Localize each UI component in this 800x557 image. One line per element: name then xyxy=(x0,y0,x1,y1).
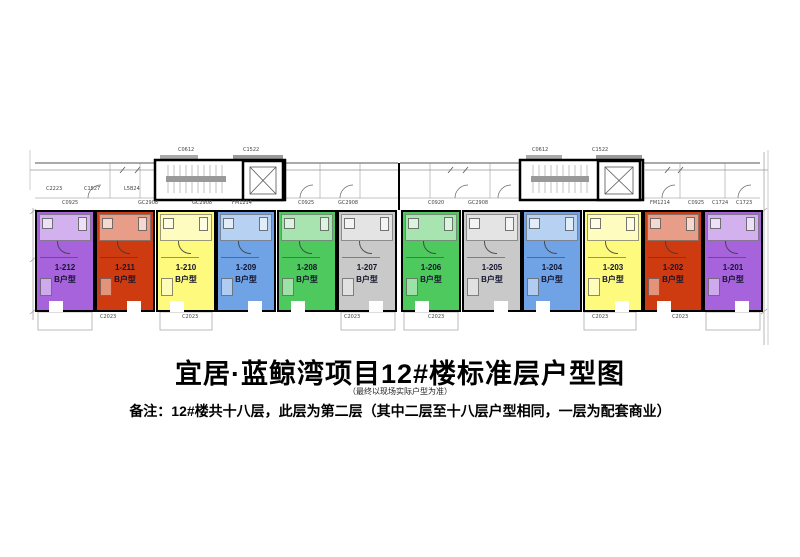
unit-type: B户型 xyxy=(524,274,580,286)
entry-recess xyxy=(735,301,749,312)
unit-type: B户型 xyxy=(37,274,93,286)
door-arc-icon xyxy=(423,241,436,254)
unit-label: 1-206 B户型 xyxy=(403,262,459,286)
unit-number: 1-205 xyxy=(464,262,520,274)
balcony-window-code: C2023 xyxy=(344,315,360,320)
unit-number: 1-210 xyxy=(158,262,214,274)
unit-number: 1-206 xyxy=(403,262,459,274)
room-divider xyxy=(527,257,565,258)
unit-type: B户型 xyxy=(339,274,395,286)
fixture-icon xyxy=(320,217,329,231)
unit-label: 1-209 B户型 xyxy=(218,262,274,286)
balcony-window-code: C2023 xyxy=(182,315,198,320)
fixture-icon xyxy=(565,217,574,231)
fixture-icon xyxy=(408,218,419,229)
unit-type: B户型 xyxy=(464,274,520,286)
fixture-icon xyxy=(746,217,755,231)
balcony-window-code: C2023 xyxy=(592,315,608,320)
balcony-window-code: C2023 xyxy=(428,315,444,320)
stairwell-left xyxy=(155,155,285,200)
window-code: GC2908 xyxy=(468,201,488,206)
unit-1-204: 1-204 B户型 xyxy=(522,210,582,312)
unit-number: 1-202 xyxy=(645,262,701,274)
fixture-icon xyxy=(380,217,389,231)
plan-note: 备注：12#楼共十八层，此层为第二层（其中二层至十八层户型相同，一层为配套商业） xyxy=(0,401,800,421)
entry-recess xyxy=(657,301,671,312)
room-divider xyxy=(467,257,505,258)
unit-number: 1-208 xyxy=(279,262,335,274)
stairwell-right xyxy=(520,155,643,200)
unit-wet-rooms xyxy=(220,214,272,241)
door-arc-icon xyxy=(57,241,70,254)
fixture-icon xyxy=(138,217,147,231)
stair-window-code: C1522 xyxy=(243,148,259,153)
unit-number: 1-212 xyxy=(37,262,93,274)
unit-label: 1-202 B户型 xyxy=(645,262,701,286)
unit-number: 1-201 xyxy=(705,262,761,274)
unit-label: 1-207 B户型 xyxy=(339,262,395,286)
unit-wet-rooms xyxy=(647,214,699,241)
fixture-icon xyxy=(686,217,695,231)
fixture-icon xyxy=(590,218,601,229)
fixture-icon xyxy=(199,217,208,231)
unit-type: B户型 xyxy=(97,274,153,286)
unit-label: 1-204 B户型 xyxy=(524,262,580,286)
page-root: 1-212 B户型 1-211 B户型 xyxy=(0,0,800,557)
room-divider xyxy=(588,257,626,258)
room-divider xyxy=(221,257,259,258)
window-code: C2223 xyxy=(46,187,62,192)
fixture-icon xyxy=(469,218,480,229)
window-code: C0925 xyxy=(62,201,78,206)
window-code: C1527 xyxy=(84,187,100,192)
stair-window-code: C0612 xyxy=(178,148,194,153)
unit-wet-rooms xyxy=(99,214,151,241)
unit-1-211: 1-211 B户型 xyxy=(95,210,155,312)
unit-number: 1-204 xyxy=(524,262,580,274)
room-divider xyxy=(406,257,444,258)
entry-recess xyxy=(494,301,508,312)
fixture-icon xyxy=(344,218,355,229)
fixture-icon xyxy=(505,217,514,231)
unit-wet-rooms xyxy=(405,214,457,241)
stair-window-code: C1522 xyxy=(592,148,608,153)
window-code: C0925 xyxy=(298,201,314,206)
door-arc-icon xyxy=(484,241,497,254)
door-code: FM1214 xyxy=(232,201,252,206)
unit-label: 1-201 B户型 xyxy=(705,262,761,286)
entry-recess xyxy=(127,301,141,312)
entry-recess xyxy=(369,301,383,312)
unit-label: 1-211 B户型 xyxy=(97,262,153,286)
entry-recess xyxy=(170,301,184,312)
balcony-window-code: C2023 xyxy=(100,315,116,320)
door-arc-icon xyxy=(178,241,191,254)
unit-1-207: 1-207 B户型 xyxy=(337,210,397,312)
room-divider xyxy=(100,257,138,258)
door-arc-icon xyxy=(665,241,678,254)
window-code: GC2908 xyxy=(138,201,158,206)
fixture-icon xyxy=(650,218,661,229)
door-code: FM1214 xyxy=(650,201,670,206)
unit-type: B户型 xyxy=(158,274,214,286)
unit-wet-rooms xyxy=(707,214,759,241)
unit-1-202: 1-202 B户型 xyxy=(643,210,703,312)
unit-number: 1-207 xyxy=(339,262,395,274)
entry-recess xyxy=(415,301,429,312)
unit-1-201: 1-201 B户型 xyxy=(703,210,763,312)
fixture-icon xyxy=(284,218,295,229)
elevator-left-icon xyxy=(243,161,283,200)
unit-1-205: 1-205 B户型 xyxy=(462,210,522,312)
unit-1-203: 1-203 B户型 xyxy=(583,210,643,312)
unit-wet-rooms xyxy=(587,214,639,241)
room-divider xyxy=(708,257,746,258)
room-divider xyxy=(161,257,199,258)
unit-wet-rooms xyxy=(39,214,91,241)
fixture-icon xyxy=(444,217,453,231)
window-code: C0920 xyxy=(428,201,444,206)
elevator-right-icon xyxy=(598,161,640,200)
unit-wet-rooms xyxy=(281,214,333,241)
unit-wet-rooms xyxy=(466,214,518,241)
fixture-icon xyxy=(223,218,234,229)
fixture-icon xyxy=(78,217,87,231)
unit-type: B户型 xyxy=(403,274,459,286)
unit-type: B户型 xyxy=(645,274,701,286)
balcony-window-code: C2023 xyxy=(672,315,688,320)
balcony-outlines xyxy=(38,312,760,330)
room-divider xyxy=(282,257,320,258)
unit-label: 1-203 B户型 xyxy=(585,262,641,286)
unit-type: B户型 xyxy=(585,274,641,286)
unit-number: 1-209 xyxy=(218,262,274,274)
door-arc-icon xyxy=(117,241,130,254)
window-code: C1723 xyxy=(736,201,752,206)
unit-wet-rooms xyxy=(341,214,393,241)
stair-window-code: C0612 xyxy=(532,148,548,153)
entry-recess xyxy=(615,301,629,312)
door-arc-icon xyxy=(605,241,618,254)
unit-label: 1-212 B户型 xyxy=(37,262,93,286)
unit-wet-rooms xyxy=(160,214,212,241)
unit-1-210: 1-210 B户型 xyxy=(156,210,216,312)
fixture-icon xyxy=(102,218,113,229)
unit-label: 1-205 B户型 xyxy=(464,262,520,286)
door-arc-icon xyxy=(544,241,557,254)
entry-recess xyxy=(49,301,63,312)
fixture-icon xyxy=(42,218,53,229)
entry-recess xyxy=(536,301,550,312)
room-divider xyxy=(40,257,78,258)
door-arc-icon xyxy=(725,241,738,254)
fixture-icon xyxy=(710,218,721,229)
door-arc-icon xyxy=(359,241,372,254)
window-code: C0925 xyxy=(688,201,704,206)
unit-1-206: 1-206 B户型 xyxy=(401,210,461,312)
unit-type: B户型 xyxy=(279,274,335,286)
window-code: GC2908 xyxy=(192,201,212,206)
window-code: L5B24 xyxy=(124,187,140,192)
door-arc-icon xyxy=(299,241,312,254)
fixture-icon xyxy=(529,218,540,229)
unit-number: 1-203 xyxy=(585,262,641,274)
window-code: C1724 xyxy=(712,201,728,206)
unit-number: 1-211 xyxy=(97,262,153,274)
room-divider xyxy=(648,257,686,258)
plan-subtitle: （最终以现场实际户型为准） xyxy=(0,386,800,397)
door-arc-icon xyxy=(238,241,251,254)
unit-1-208: 1-208 B户型 xyxy=(277,210,337,312)
fixture-icon xyxy=(626,217,635,231)
room-divider xyxy=(342,257,380,258)
unit-1-212: 1-212 B户型 xyxy=(35,210,95,312)
corridor-band xyxy=(35,163,760,198)
unit-label: 1-208 B户型 xyxy=(279,262,335,286)
fixture-icon xyxy=(163,218,174,229)
fixture-icon xyxy=(259,217,268,231)
entry-recess xyxy=(248,301,262,312)
unit-type: B户型 xyxy=(705,274,761,286)
entry-recess xyxy=(291,301,305,312)
window-code: GC2908 xyxy=(338,201,358,206)
unit-wet-rooms xyxy=(526,214,578,241)
unit-label: 1-210 B户型 xyxy=(158,262,214,286)
unit-1-209: 1-209 B户型 xyxy=(216,210,276,312)
unit-type: B户型 xyxy=(218,274,274,286)
